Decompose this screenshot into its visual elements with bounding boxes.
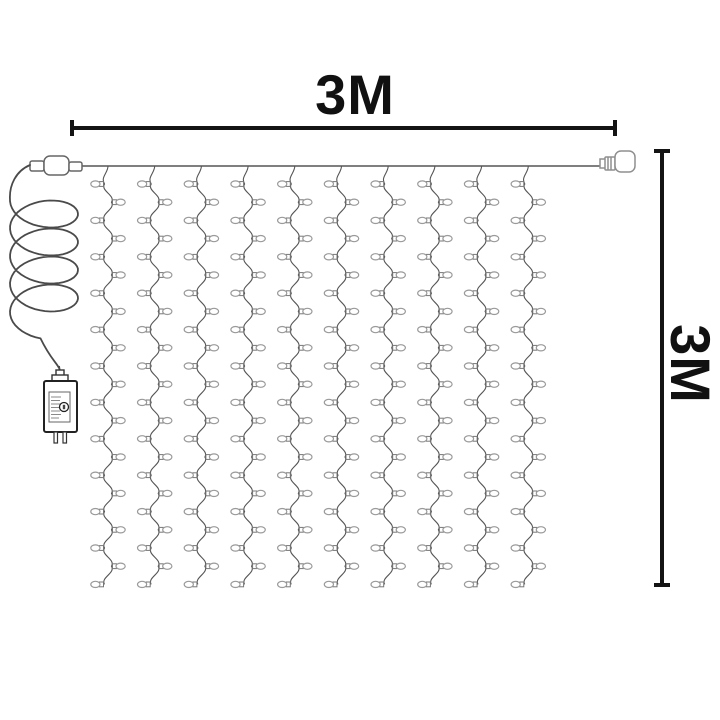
led-bulb	[138, 545, 147, 551]
led-bulb	[511, 581, 520, 587]
plug-prong	[63, 432, 67, 443]
led-bulb	[490, 563, 499, 569]
led-bulb	[278, 581, 287, 587]
led-bulb	[303, 563, 312, 569]
led-bulb	[350, 236, 359, 242]
led-bulb	[536, 563, 545, 569]
led-bulb	[278, 472, 287, 478]
led-bulb	[116, 527, 125, 533]
led-bulb	[138, 399, 147, 405]
led-bulb	[138, 217, 147, 223]
light-strand	[138, 166, 172, 588]
led-bulb	[324, 436, 333, 442]
led-bulb	[184, 545, 193, 551]
led-bulb	[278, 290, 287, 296]
led-bulb	[209, 345, 218, 351]
led-bulb	[418, 327, 427, 333]
led-bulb	[464, 509, 473, 515]
led-bulb	[278, 363, 287, 369]
led-bulb	[418, 436, 427, 442]
led-bulb	[324, 545, 333, 551]
led-bulb	[303, 490, 312, 496]
led-bulb	[350, 345, 359, 351]
led-bulb	[138, 363, 147, 369]
light-strand	[418, 166, 452, 588]
led-bulb	[511, 436, 520, 442]
led-bulb	[256, 199, 265, 205]
led-bulb	[418, 545, 427, 551]
led-bulb	[231, 254, 240, 260]
led-bulb	[91, 254, 100, 260]
cable-coupler-connector-icon	[30, 156, 82, 175]
led-bulb	[231, 327, 240, 333]
led-bulb	[231, 181, 240, 187]
led-bulb	[464, 181, 473, 187]
led-bulb	[256, 563, 265, 569]
led-bulb	[490, 490, 499, 496]
led-bulb	[184, 472, 193, 478]
led-bulb	[371, 436, 380, 442]
led-bulb	[184, 327, 193, 333]
led-bulb	[418, 181, 427, 187]
led-bulb	[350, 381, 359, 387]
led-bulb	[116, 454, 125, 460]
led-bulb	[371, 472, 380, 478]
led-bulb	[443, 490, 452, 496]
led-bulb	[303, 308, 312, 314]
led-bulb	[91, 363, 100, 369]
led-bulb	[184, 217, 193, 223]
led-bulb	[536, 490, 545, 496]
led-bulb	[256, 454, 265, 460]
light-strand	[278, 166, 312, 588]
led-bulb	[350, 272, 359, 278]
led-bulb	[303, 345, 312, 351]
led-bulb	[278, 327, 287, 333]
led-bulb	[184, 399, 193, 405]
led-bulb	[371, 181, 380, 187]
led-bulb	[278, 545, 287, 551]
led-bulb	[464, 363, 473, 369]
led-bulb	[511, 363, 520, 369]
led-bulb	[350, 199, 359, 205]
led-bulb	[511, 254, 520, 260]
led-bulb	[490, 345, 499, 351]
led-bulb	[91, 545, 100, 551]
led-bulb	[371, 363, 380, 369]
led-bulb	[116, 236, 125, 242]
led-bulb	[303, 272, 312, 278]
plug-prong	[54, 432, 58, 443]
led-bulb	[396, 563, 405, 569]
led-bulb	[256, 381, 265, 387]
light-strand	[324, 166, 358, 588]
led-bulb	[418, 472, 427, 478]
led-bulb	[278, 181, 287, 187]
led-bulb	[91, 290, 100, 296]
led-bulb	[443, 381, 452, 387]
curtain-lights-illustration	[0, 0, 720, 720]
led-bulb	[350, 563, 359, 569]
led-bulb	[163, 236, 172, 242]
led-bulb	[324, 181, 333, 187]
led-bulb	[371, 254, 380, 260]
led-bulb	[490, 527, 499, 533]
light-strand	[91, 166, 125, 588]
led-bulb	[231, 436, 240, 442]
led-bulb	[303, 527, 312, 533]
led-bulb	[443, 272, 452, 278]
led-bulb	[116, 563, 125, 569]
led-bulb	[163, 199, 172, 205]
led-bulb	[536, 527, 545, 533]
led-bulb	[464, 436, 473, 442]
led-bulb	[443, 527, 452, 533]
led-bulb	[443, 236, 452, 242]
led-bulb	[396, 236, 405, 242]
led-bulb	[116, 199, 125, 205]
led-bulb	[163, 563, 172, 569]
led-bulb	[464, 327, 473, 333]
led-bulb	[91, 509, 100, 515]
led-bulb	[184, 290, 193, 296]
led-bulb	[324, 254, 333, 260]
led-bulb	[231, 509, 240, 515]
led-bulb	[350, 418, 359, 424]
led-bulb	[231, 545, 240, 551]
led-bulb	[303, 381, 312, 387]
led-bulb	[209, 490, 218, 496]
led-bulb	[209, 454, 218, 460]
led-bulb	[371, 545, 380, 551]
led-bulb	[163, 527, 172, 533]
led-bulb	[396, 418, 405, 424]
led-bulb	[490, 308, 499, 314]
led-bulb	[396, 308, 405, 314]
led-bulb	[256, 490, 265, 496]
led-bulb	[396, 272, 405, 278]
led-bulb	[231, 363, 240, 369]
led-bulb	[256, 308, 265, 314]
led-bulb	[536, 272, 545, 278]
led-bulb	[163, 418, 172, 424]
led-bulb	[184, 509, 193, 515]
led-bulb	[209, 381, 218, 387]
led-bulb	[91, 472, 100, 478]
led-bulb	[209, 199, 218, 205]
led-bulb	[163, 454, 172, 460]
led-bulb	[209, 418, 218, 424]
end-plug-connector-icon	[600, 151, 635, 172]
led-bulb	[184, 363, 193, 369]
led-bulb	[464, 545, 473, 551]
led-bulb	[350, 490, 359, 496]
led-bulb	[256, 236, 265, 242]
led-bulb	[138, 509, 147, 515]
led-bulb	[231, 217, 240, 223]
led-bulb	[324, 509, 333, 515]
led-bulb	[256, 345, 265, 351]
led-bulb	[91, 217, 100, 223]
led-bulb	[536, 236, 545, 242]
led-bulb	[231, 581, 240, 587]
led-bulb	[303, 199, 312, 205]
light-strand	[371, 166, 405, 588]
led-bulb	[443, 199, 452, 205]
led-bulb	[209, 272, 218, 278]
led-bulb	[324, 472, 333, 478]
led-bulb	[303, 236, 312, 242]
led-bulb	[536, 381, 545, 387]
power-adapter-icon	[44, 366, 77, 443]
led-bulb	[163, 381, 172, 387]
led-bulb	[418, 290, 427, 296]
led-bulb	[371, 327, 380, 333]
led-bulb	[511, 181, 520, 187]
led-bulb	[278, 217, 287, 223]
led-bulb	[231, 290, 240, 296]
led-bulb	[350, 454, 359, 460]
coiled-power-cable	[10, 165, 78, 368]
led-bulb	[184, 436, 193, 442]
led-bulb	[511, 399, 520, 405]
led-bulb	[303, 418, 312, 424]
led-bulb	[418, 399, 427, 405]
led-bulb	[511, 509, 520, 515]
led-bulb	[350, 527, 359, 533]
led-bulb	[490, 199, 499, 205]
led-bulb	[490, 381, 499, 387]
led-bulb	[184, 181, 193, 187]
led-bulb	[209, 308, 218, 314]
light-strand	[231, 166, 265, 588]
led-bulb	[396, 381, 405, 387]
led-bulb	[138, 581, 147, 587]
led-bulb	[209, 563, 218, 569]
led-bulb	[371, 290, 380, 296]
led-bulb	[324, 290, 333, 296]
led-bulb	[324, 363, 333, 369]
led-bulb	[116, 308, 125, 314]
led-bulb	[163, 345, 172, 351]
led-bulb	[396, 527, 405, 533]
led-bulb	[231, 472, 240, 478]
led-bulb	[396, 490, 405, 496]
product-diagram: 3M 3M	[0, 0, 720, 720]
led-bulb	[511, 217, 520, 223]
led-bulb	[536, 418, 545, 424]
led-bulb	[91, 327, 100, 333]
light-strand	[511, 166, 545, 588]
led-bulb	[443, 418, 452, 424]
led-bulb	[443, 563, 452, 569]
led-bulb	[91, 399, 100, 405]
led-bulb	[490, 272, 499, 278]
led-bulb	[536, 308, 545, 314]
led-bulb	[371, 399, 380, 405]
led-bulb	[443, 308, 452, 314]
led-bulb	[324, 327, 333, 333]
led-bulb	[209, 236, 218, 242]
light-strand	[464, 166, 498, 588]
led-bulb	[418, 509, 427, 515]
led-bulb	[396, 199, 405, 205]
led-bulb	[490, 236, 499, 242]
led-bulb	[396, 345, 405, 351]
led-bulb	[464, 290, 473, 296]
led-bulb	[116, 272, 125, 278]
led-bulb	[278, 436, 287, 442]
led-bulb	[256, 527, 265, 533]
led-bulb	[464, 581, 473, 587]
led-bulb	[418, 363, 427, 369]
led-bulb	[536, 454, 545, 460]
led-bulb	[418, 217, 427, 223]
light-strand	[184, 166, 218, 588]
led-bulb	[231, 399, 240, 405]
led-bulb	[116, 381, 125, 387]
led-bulb	[278, 399, 287, 405]
led-bulb	[443, 345, 452, 351]
led-bulb	[91, 436, 100, 442]
led-bulb	[536, 199, 545, 205]
led-bulb	[163, 272, 172, 278]
led-bulb	[116, 345, 125, 351]
led-bulb	[138, 290, 147, 296]
led-bulb	[256, 272, 265, 278]
led-bulb	[324, 581, 333, 587]
led-bulb	[464, 217, 473, 223]
led-bulb	[511, 327, 520, 333]
led-bulb	[511, 472, 520, 478]
led-bulb	[256, 418, 265, 424]
led-bulb	[371, 581, 380, 587]
led-bulb	[464, 254, 473, 260]
led-bulb	[371, 217, 380, 223]
led-bulb	[163, 490, 172, 496]
led-bulb	[464, 472, 473, 478]
led-bulb	[278, 509, 287, 515]
led-bulb	[536, 345, 545, 351]
led-bulb	[138, 472, 147, 478]
led-bulb	[116, 490, 125, 496]
led-bulb	[418, 254, 427, 260]
led-bulb	[184, 581, 193, 587]
led-bulb	[209, 527, 218, 533]
led-bulb	[138, 436, 147, 442]
led-bulb	[138, 181, 147, 187]
led-bulb	[324, 217, 333, 223]
led-bulb	[418, 581, 427, 587]
led-bulb	[184, 254, 193, 260]
led-bulb	[138, 327, 147, 333]
led-bulb	[443, 454, 452, 460]
led-bulb	[278, 254, 287, 260]
led-bulb	[163, 308, 172, 314]
led-bulb	[138, 254, 147, 260]
led-bulb	[511, 290, 520, 296]
led-bulb	[91, 181, 100, 187]
led-bulb	[324, 399, 333, 405]
led-bulb	[511, 545, 520, 551]
led-bulb	[490, 454, 499, 460]
led-bulb	[350, 308, 359, 314]
led-bulb	[371, 509, 380, 515]
led-bulb	[91, 581, 100, 587]
led-bulb	[464, 399, 473, 405]
led-bulb	[303, 454, 312, 460]
led-bulb	[116, 418, 125, 424]
led-bulb	[490, 418, 499, 424]
led-bulb	[396, 454, 405, 460]
